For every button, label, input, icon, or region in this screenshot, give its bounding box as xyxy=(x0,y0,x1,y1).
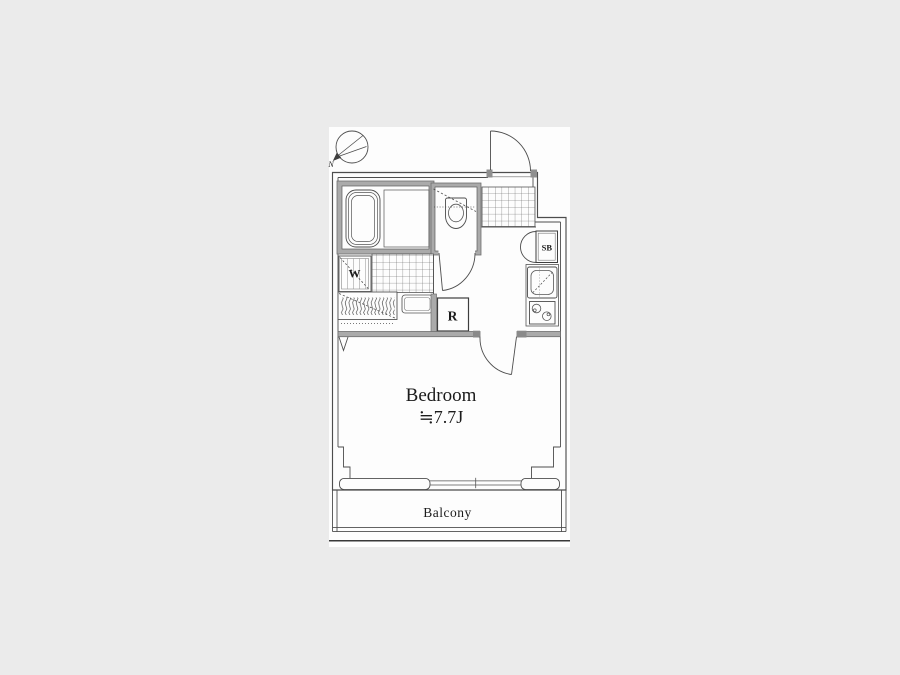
page-background: { "colors": { "background": "#ebebeb", "… xyxy=(0,0,900,675)
bathroom xyxy=(337,181,434,254)
washbasin xyxy=(402,295,433,313)
shoe-box-label: SB xyxy=(542,243,553,253)
toilet-doorway xyxy=(439,250,476,256)
washing-machine-space: W xyxy=(339,256,371,292)
door-post xyxy=(487,170,493,178)
door-post xyxy=(517,331,527,338)
entrance-tile-floor xyxy=(481,187,536,227)
closet xyxy=(338,292,397,324)
kitchen xyxy=(526,265,559,327)
floor-plan-canvas: N xyxy=(0,0,900,675)
door-post xyxy=(473,331,480,338)
balcony-label: Balcony xyxy=(423,505,472,520)
bedroom-size-label: ≒7.7J xyxy=(419,407,464,427)
bedroom-label: Bedroom xyxy=(406,385,477,406)
door-post xyxy=(531,170,538,178)
refrigerator-label: R xyxy=(448,309,458,324)
north-label: N xyxy=(327,160,334,169)
washroom-tile-floor xyxy=(372,254,434,294)
washer-label: W xyxy=(349,267,361,281)
refrigerator-space: R xyxy=(431,294,469,336)
